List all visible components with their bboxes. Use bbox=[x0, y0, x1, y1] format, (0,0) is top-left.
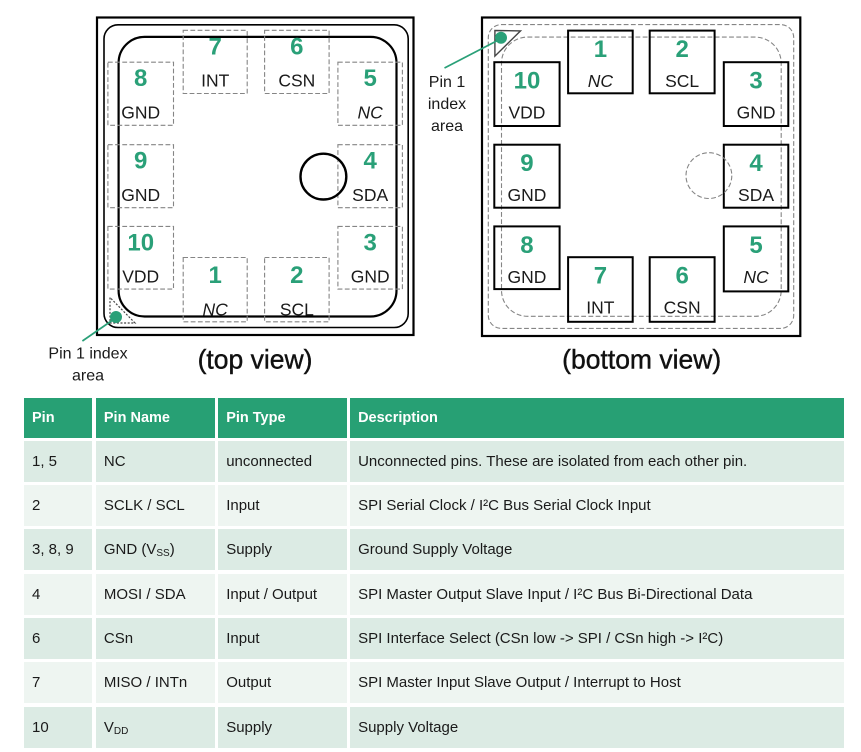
svg-text:SDA: SDA bbox=[352, 185, 388, 205]
svg-text:4: 4 bbox=[749, 150, 763, 177]
svg-text:Pin 1 index: Pin 1 index bbox=[48, 346, 127, 363]
svg-text:9: 9 bbox=[520, 150, 533, 177]
svg-text:(top view): (top view) bbox=[198, 345, 313, 375]
svg-text:2: 2 bbox=[675, 36, 688, 63]
svg-text:GND: GND bbox=[508, 185, 547, 205]
svg-text:10: 10 bbox=[127, 229, 154, 256]
svg-text:NC: NC bbox=[743, 267, 769, 287]
svg-text:GND: GND bbox=[508, 267, 547, 287]
svg-text:10: 10 bbox=[514, 68, 541, 95]
svg-text:8: 8 bbox=[134, 65, 147, 92]
svg-text:NC: NC bbox=[358, 102, 384, 122]
svg-text:VDD: VDD bbox=[508, 103, 545, 123]
svg-text:9: 9 bbox=[134, 148, 147, 175]
svg-text:6: 6 bbox=[290, 33, 303, 60]
svg-text:8: 8 bbox=[520, 232, 533, 259]
svg-text:7: 7 bbox=[209, 33, 222, 60]
svg-text:area: area bbox=[72, 368, 104, 385]
svg-text:GND: GND bbox=[351, 267, 390, 287]
svg-text:INT: INT bbox=[201, 71, 230, 91]
svg-text:index: index bbox=[428, 96, 466, 113]
svg-text:CSN: CSN bbox=[664, 298, 701, 318]
svg-text:3: 3 bbox=[749, 68, 762, 95]
svg-text:1: 1 bbox=[594, 36, 607, 63]
svg-text:area: area bbox=[431, 118, 463, 135]
svg-text:3: 3 bbox=[363, 229, 376, 256]
svg-text:SDA: SDA bbox=[738, 185, 774, 205]
svg-text:7: 7 bbox=[594, 263, 607, 290]
svg-text:NC: NC bbox=[203, 300, 229, 320]
svg-text:CSN: CSN bbox=[278, 71, 315, 91]
svg-text:(bottom view): (bottom view) bbox=[562, 345, 721, 375]
svg-text:Pin 1: Pin 1 bbox=[429, 74, 466, 91]
svg-text:INT: INT bbox=[586, 298, 615, 318]
svg-text:6: 6 bbox=[675, 263, 688, 290]
svg-text:GND: GND bbox=[121, 185, 160, 205]
svg-text:GND: GND bbox=[121, 102, 160, 122]
svg-text:VDD: VDD bbox=[122, 267, 159, 287]
svg-text:1: 1 bbox=[209, 262, 222, 289]
svg-text:GND: GND bbox=[737, 103, 776, 123]
svg-text:4: 4 bbox=[363, 148, 377, 175]
svg-text:5: 5 bbox=[363, 65, 376, 92]
svg-text:SCL: SCL bbox=[280, 300, 314, 320]
svg-text:5: 5 bbox=[749, 232, 762, 259]
svg-text:NC: NC bbox=[588, 71, 614, 91]
svg-text:SCL: SCL bbox=[665, 71, 699, 91]
svg-text:2: 2 bbox=[290, 262, 303, 289]
